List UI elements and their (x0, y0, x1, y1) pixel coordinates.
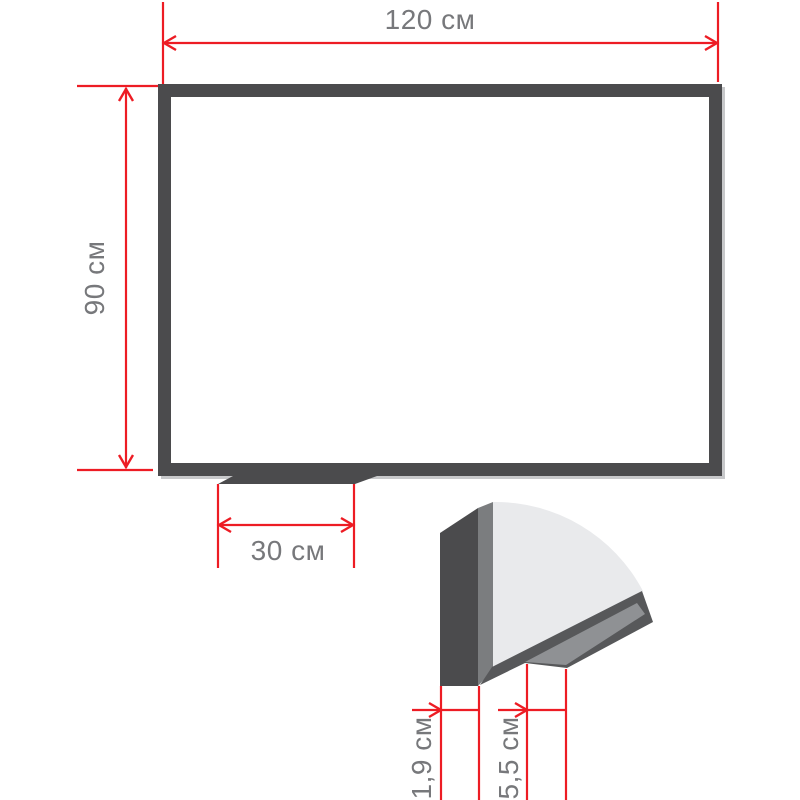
marker-tray (218, 476, 377, 484)
height-dimension-label: 90 см (79, 241, 110, 316)
dimension-width: 120 см (163, 2, 718, 84)
dimension-tray-depth: 5,5 см (493, 664, 566, 800)
frame-profile-side (478, 502, 493, 686)
tray-width-dimension-label: 30 см (251, 535, 326, 566)
dimension-frame-depth: 1,9 см (406, 686, 479, 800)
frame-profile-face (440, 508, 478, 686)
dimension-height: 90 см (77, 86, 158, 470)
diagram-canvas: 120 см 90 см 30 см 1,9 см (0, 0, 800, 800)
tray-depth-dimension-label: 5,5 см (493, 717, 524, 800)
dimension-tray-width: 30 см (218, 484, 354, 568)
board-surface (171, 97, 709, 463)
width-dimension-label: 120 см (385, 4, 476, 35)
frame-depth-dimension-label: 1,9 см (406, 717, 437, 800)
board-front-view (158, 84, 725, 484)
corner-cross-section (440, 502, 653, 686)
product-dimension-diagram: 120 см 90 см 30 см 1,9 см (0, 0, 800, 800)
